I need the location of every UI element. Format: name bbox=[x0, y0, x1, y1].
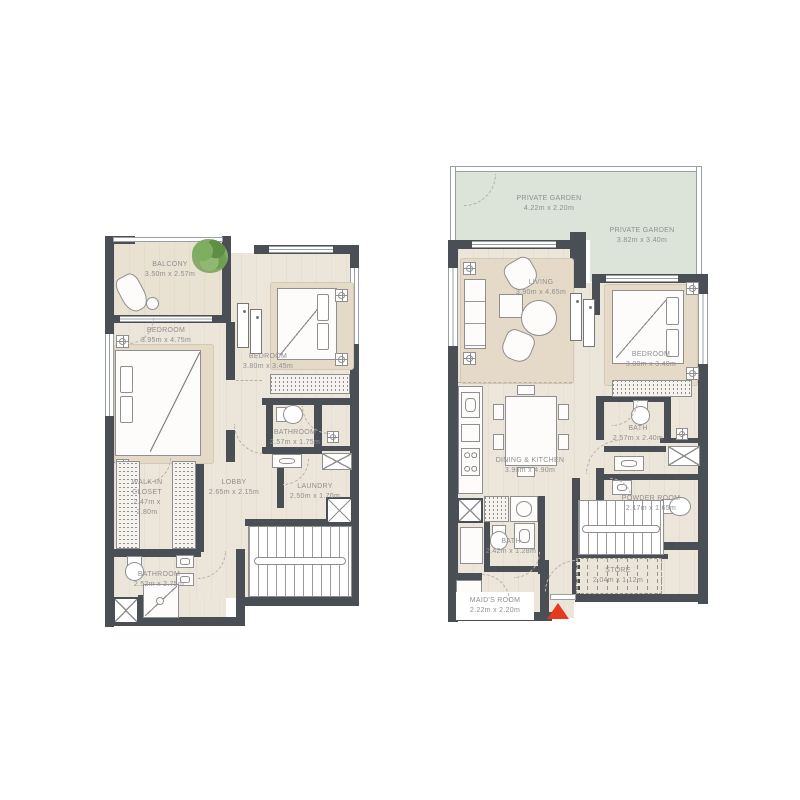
chair-icon bbox=[493, 404, 504, 420]
chair-icon bbox=[517, 385, 535, 395]
room-label-bath: BATH 2.57m x 2.40m bbox=[613, 424, 663, 444]
washer-icon bbox=[510, 496, 538, 522]
room-name: DINING & KITCHEN bbox=[496, 456, 565, 466]
room-label-dining-kitchen: DINING & KITCHEN 3.90m x 4.90m bbox=[496, 456, 565, 476]
room-dims: 3.90m x 4.90m bbox=[496, 466, 565, 476]
room-name: BEDROOM bbox=[626, 350, 676, 360]
room-dims: 2.17m x 1.65m bbox=[622, 504, 681, 514]
room-dims: 3.82m x 3.40m bbox=[609, 236, 674, 246]
floor-plan-canvas: BALCONY 3.50m x 2.57m BEDROOM 3.95m x 4.… bbox=[0, 0, 800, 800]
shower-icon bbox=[668, 446, 700, 466]
room-label-bedroom: BEDROOM 3.80m x 3.40m bbox=[626, 350, 676, 370]
wall bbox=[596, 396, 604, 440]
room-name: STORE bbox=[593, 566, 643, 576]
entry-threshold bbox=[550, 594, 576, 600]
closet-icon bbox=[460, 527, 483, 564]
shaft-icon bbox=[457, 498, 483, 523]
room-name: PRIVATE GARDEN bbox=[609, 226, 674, 236]
stair-rail bbox=[582, 525, 660, 533]
room-label-maids-room: MAID'S ROOM 2.22m x 2.20m bbox=[470, 596, 521, 616]
wall bbox=[575, 594, 708, 602]
window bbox=[472, 241, 556, 248]
room-dims: 3.90m x 4.65m bbox=[516, 288, 566, 298]
room-dims: 2.04m x 1.12m bbox=[593, 576, 643, 586]
window bbox=[448, 268, 458, 346]
room-name: BATH bbox=[613, 424, 663, 434]
chair-icon bbox=[558, 404, 569, 420]
garden-wall bbox=[450, 166, 456, 246]
floor-plan-right: PRIVATE GARDEN 4.22m x 2.20m PRIVATE GAR… bbox=[0, 0, 800, 800]
nightstand-lamp-icon bbox=[686, 367, 699, 380]
stove-icon bbox=[461, 448, 480, 476]
wall bbox=[664, 396, 671, 438]
counter-board bbox=[461, 424, 480, 442]
room-name: MAID'S ROOM bbox=[470, 596, 521, 606]
room-label-store: STORE 2.04m x 1.12m bbox=[593, 566, 643, 586]
room-name: POWDER ROOM bbox=[622, 494, 681, 504]
chair-icon bbox=[493, 434, 504, 450]
kitchen-sink-icon bbox=[461, 392, 480, 418]
wall bbox=[538, 496, 545, 574]
wall bbox=[452, 573, 482, 580]
room-dims: 3.80m x 3.40m bbox=[626, 360, 676, 370]
pillow-icon bbox=[666, 297, 679, 325]
room-dims: 4.22m x 2.20m bbox=[516, 204, 581, 214]
dashed-divider bbox=[458, 382, 572, 384]
room-dims: 2.57m x 2.40m bbox=[613, 434, 663, 444]
door-panel bbox=[570, 293, 582, 341]
room-dims: 2.22m x 2.20m bbox=[470, 606, 521, 616]
wardrobe bbox=[612, 380, 692, 397]
room-label-private-garden-1: PRIVATE GARDEN 4.22m x 2.20m bbox=[516, 194, 581, 214]
room-label-powder-room: POWDER ROOM 2.17m x 1.65m bbox=[622, 494, 681, 514]
nightstand-lamp-icon bbox=[686, 282, 699, 295]
window bbox=[606, 275, 678, 282]
room-name: PRIVATE GARDEN bbox=[516, 194, 581, 204]
counter-hatch bbox=[484, 496, 509, 522]
room-label-private-garden-2: PRIVATE GARDEN 3.82m x 3.40m bbox=[609, 226, 674, 246]
room-label-living: LIVING 3.90m x 4.65m bbox=[516, 278, 566, 298]
fixture-icon bbox=[676, 428, 688, 440]
side-table-lamp-icon bbox=[463, 352, 476, 365]
room-dims: 2.42m x 1.28m bbox=[486, 547, 536, 557]
entrance-marker-icon bbox=[547, 603, 569, 619]
side-table-lamp-icon bbox=[463, 262, 476, 275]
room-name: LIVING bbox=[516, 278, 566, 288]
garden-wall bbox=[450, 166, 700, 172]
room-name: BATH bbox=[486, 537, 536, 547]
chair-icon bbox=[558, 434, 569, 450]
round-table-icon bbox=[521, 300, 557, 336]
room-label-bath-small: BATH 2.42m x 1.28m bbox=[486, 537, 536, 557]
door-panel bbox=[583, 299, 595, 347]
garden-wall bbox=[696, 166, 702, 278]
window bbox=[698, 294, 708, 364]
sofa-icon bbox=[464, 279, 486, 349]
